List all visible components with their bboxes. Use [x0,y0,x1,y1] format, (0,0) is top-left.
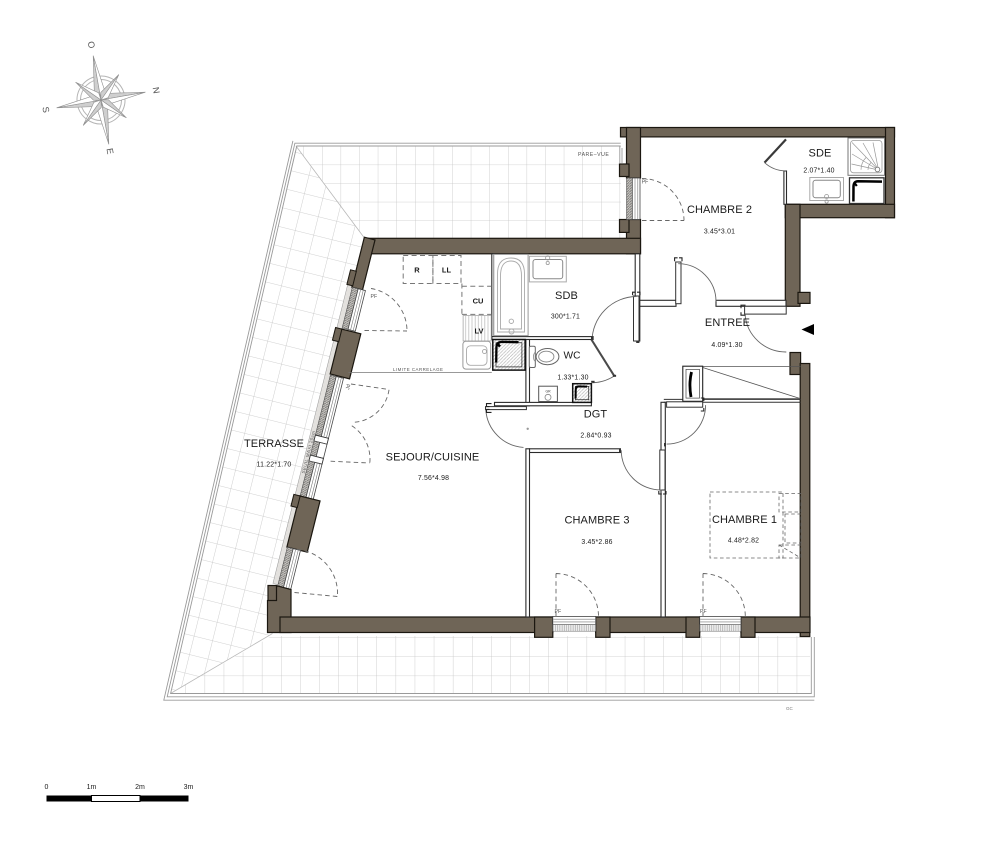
svg-text:3m: 3m [184,784,194,791]
svg-text:PF: PF [555,609,562,615]
svg-text:PARE–VUE: PARE–VUE [578,152,609,158]
svg-text:CHAMBRE 3: CHAMBRE 3 [564,515,629,527]
svg-text:3.45*2.86: 3.45*2.86 [581,539,612,546]
svg-text:R: R [414,266,420,275]
svg-text:DGT: DGT [584,409,608,421]
svg-text:SDE: SDE [809,148,832,160]
svg-text:LL: LL [442,266,452,275]
svg-text:300*1.71: 300*1.71 [551,314,580,321]
svg-text:LIMITE CARRELAGE: LIMITE CARRELAGE [393,367,443,372]
svg-text:PF: PF [371,294,378,300]
svg-text:PF: PF [700,609,707,615]
svg-text:2.07*1.40: 2.07*1.40 [803,168,834,175]
svg-text:1m: 1m [87,784,97,791]
svg-text:CHAMBRE 1: CHAMBRE 1 [712,514,777,526]
svg-text:PF: PF [642,180,649,186]
svg-text:CHAMBRE 2: CHAMBRE 2 [687,204,752,216]
svg-text:2m: 2m [135,784,145,791]
svg-text:GC: GC [786,706,794,711]
svg-text:0: 0 [45,784,49,791]
svg-text:LV: LV [474,327,483,336]
svg-text:ENTREE: ENTREE [705,317,750,329]
svg-text:4.09*1.30: 4.09*1.30 [711,342,742,349]
svg-text:1.33*1.30: 1.33*1.30 [557,375,588,382]
svg-text:TERRASSE: TERRASSE [244,438,304,450]
svg-text:CU: CU [473,297,484,306]
svg-text:WC: WC [564,351,581,362]
svg-text:3.45*3.01: 3.45*3.01 [704,229,735,236]
svg-text:2.84*0.93: 2.84*0.93 [580,433,611,440]
svg-text:7.56*4.98: 7.56*4.98 [418,475,449,482]
svg-text:4.48*2.82: 4.48*2.82 [728,538,759,545]
svg-text:SDB: SDB [555,290,578,302]
svg-text:SEJOUR/CUISINE: SEJOUR/CUISINE [386,452,480,464]
svg-text:GR: GR [545,389,551,393]
svg-text:11.22*1.70: 11.22*1.70 [257,462,292,469]
